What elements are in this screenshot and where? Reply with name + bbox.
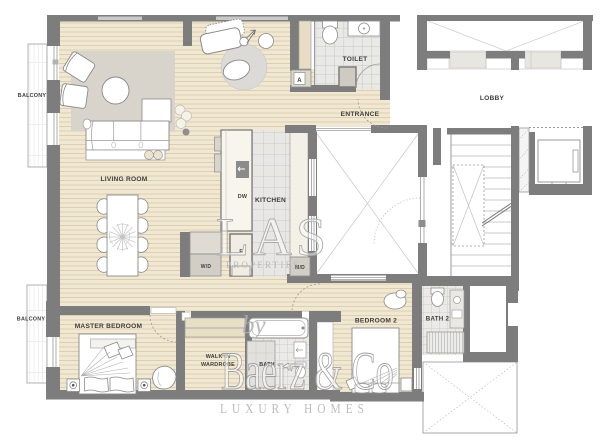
svg-text:KITCHEN: KITCHEN <box>255 197 286 204</box>
svg-text:by: by <box>242 312 267 339</box>
svg-text:BALCONY: BALCONY <box>18 93 47 99</box>
svg-text:W/D: W/D <box>201 264 212 270</box>
svg-text:LUXURY HOMES: LUXURY HOMES <box>220 401 369 416</box>
svg-text:A: A <box>297 78 302 84</box>
svg-text:TOILET: TOILET <box>343 56 368 63</box>
svg-text:PROPERTIES: PROPERTIES <box>226 260 300 270</box>
svg-text:ENTRANCE: ENTRANCE <box>341 111 380 118</box>
svg-text:BATH 2: BATH 2 <box>426 316 450 323</box>
svg-text:Baerz & Co: Baerz & Co <box>221 341 394 401</box>
svg-text:BALCONY: BALCONY <box>17 317 46 323</box>
svg-text:BEDROOM 2: BEDROOM 2 <box>355 318 397 325</box>
svg-text:LOBBY: LOBBY <box>480 95 505 102</box>
svg-text:LAS: LAS <box>216 207 330 267</box>
svg-text:MASTER BEDROOM: MASTER BEDROOM <box>75 323 143 330</box>
svg-text:DW: DW <box>238 194 248 200</box>
svg-text:LIVING ROOM: LIVING ROOM <box>100 176 147 183</box>
